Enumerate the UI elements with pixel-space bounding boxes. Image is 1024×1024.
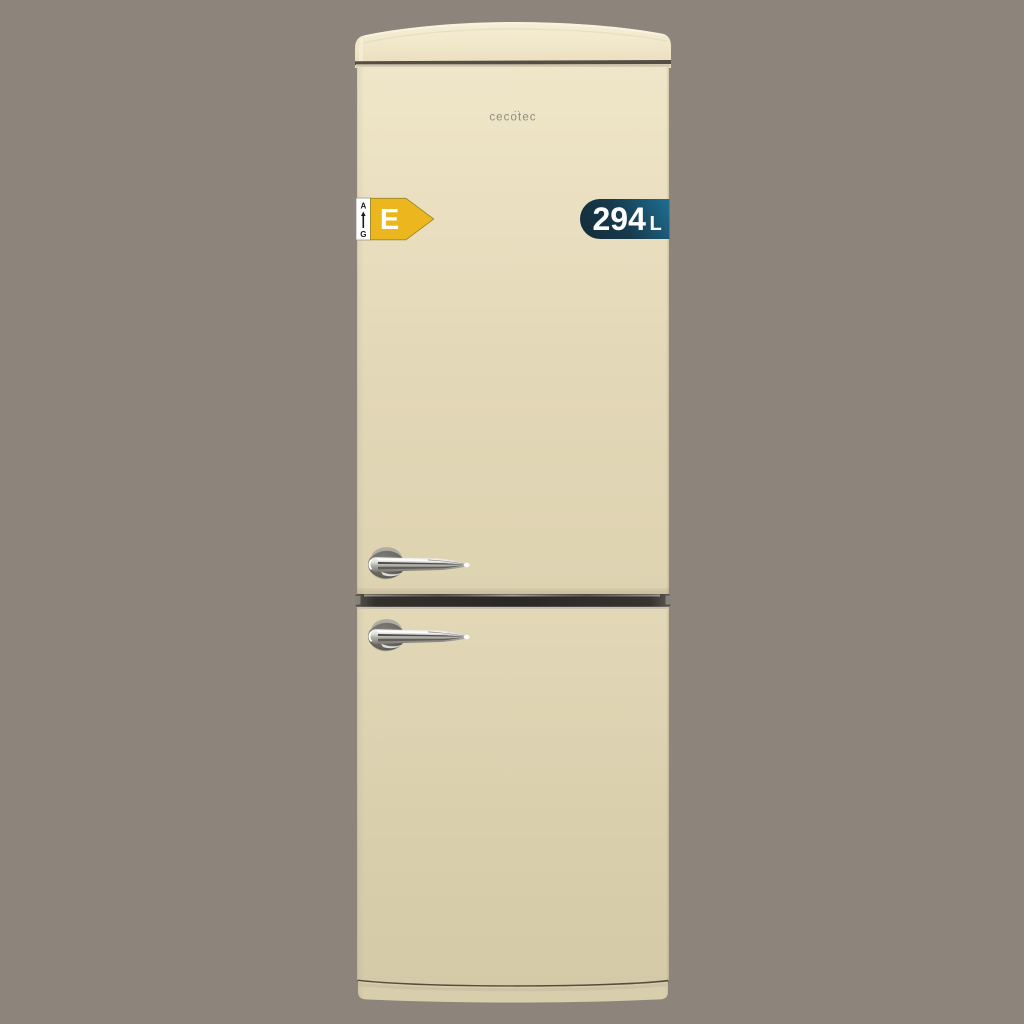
svg-text:G: G (360, 230, 366, 239)
svg-text:294: 294 (593, 201, 647, 237)
svg-text:L: L (650, 213, 662, 235)
svg-text:cecotec: cecotec (489, 112, 536, 124)
svg-text:E: E (380, 204, 399, 236)
svg-text:A: A (361, 202, 367, 211)
